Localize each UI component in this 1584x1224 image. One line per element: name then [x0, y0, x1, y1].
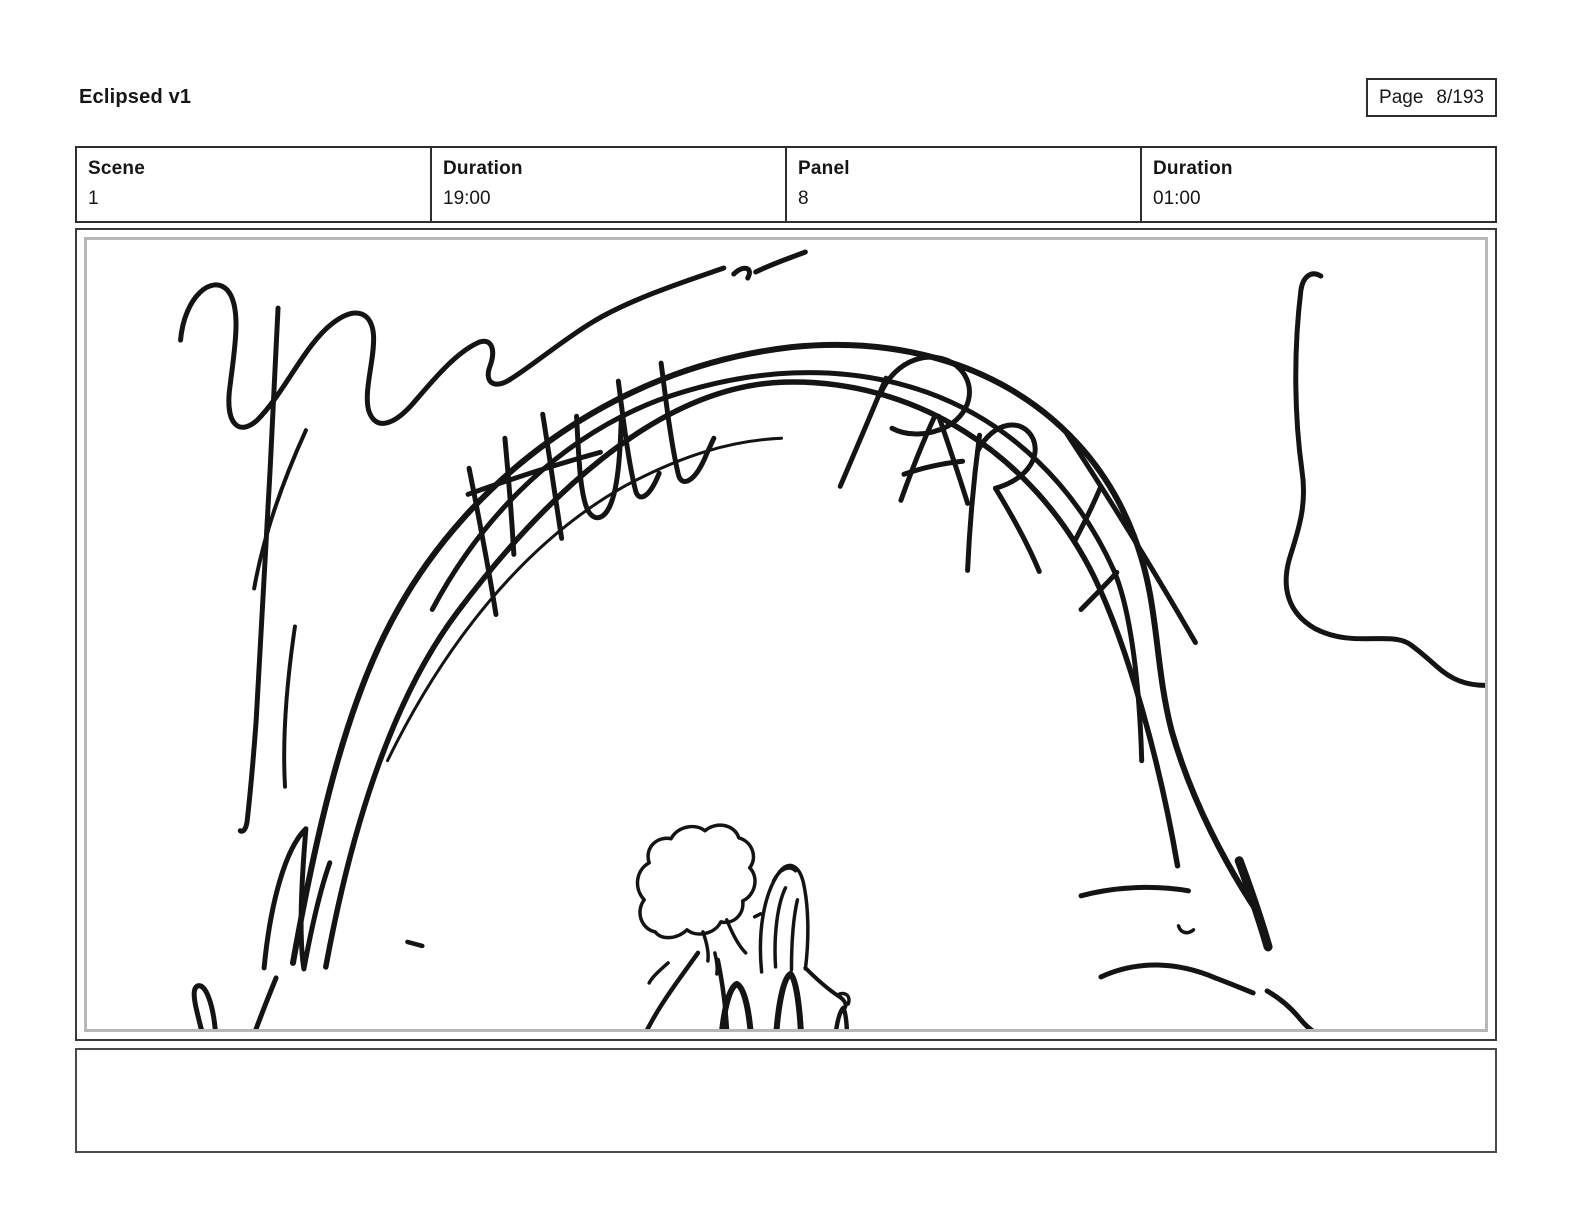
- arch-right-foot: [1239, 861, 1268, 947]
- info-col-scene-duration: Duration 19:00: [430, 148, 785, 221]
- panel-duration-label: Duration: [1153, 157, 1487, 181]
- info-col-scene: Scene 1: [77, 148, 430, 221]
- sketch-canvas: [87, 240, 1485, 1029]
- arch-middle-band: [326, 382, 1178, 967]
- panel-value: 8: [798, 188, 1132, 210]
- figure-long-hair: [755, 866, 849, 1029]
- panel-duration-value: 01:00: [1153, 188, 1487, 210]
- page-indicator: Page 8/193: [1366, 78, 1497, 117]
- scene-label: Scene: [88, 157, 422, 181]
- figure-1-hair: [637, 825, 755, 938]
- info-col-panel-duration: Duration 01:00: [1140, 148, 1495, 221]
- treeline-right: [1286, 274, 1485, 686]
- panel-notes-box: [75, 1048, 1497, 1153]
- project-title: Eclipsed v1: [79, 86, 191, 109]
- figure-1-legs: [721, 984, 752, 1029]
- storyboard-frame: [75, 228, 1497, 1041]
- arch-inner-thin-line: [387, 438, 781, 760]
- scene-value: 1: [88, 188, 422, 210]
- info-col-panel: Panel 8: [785, 148, 1140, 221]
- page-label: Page: [1379, 87, 1423, 109]
- figure-2-hair: [760, 866, 807, 972]
- sign-word-hull: [468, 363, 714, 614]
- figure-2-arm: [805, 968, 845, 1009]
- page-number: 8/193: [1436, 87, 1484, 109]
- scene-duration-value: 19:00: [443, 188, 777, 210]
- panel-label: Panel: [798, 157, 1132, 181]
- ground-strokes-right: [1081, 887, 1338, 1029]
- storyboard-sketch: [84, 237, 1488, 1032]
- panel-info-bar: Scene 1 Duration 19:00 Panel 8 Duration …: [75, 146, 1497, 223]
- figure-2-leg: [834, 1008, 847, 1029]
- scene-duration-label: Duration: [443, 157, 777, 181]
